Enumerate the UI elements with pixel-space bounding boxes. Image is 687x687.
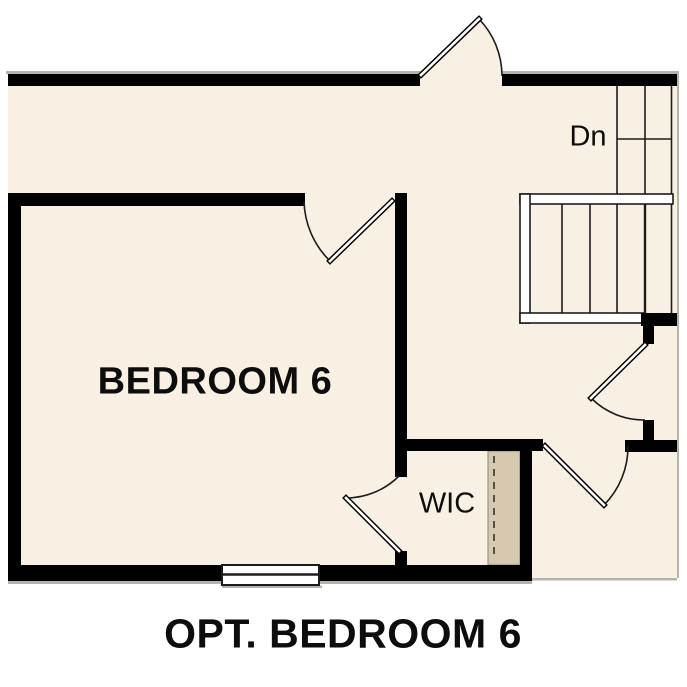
wall-bedroom-left xyxy=(8,193,21,581)
shadow-bottom-right-edge xyxy=(532,578,677,581)
wall-wic-door-jamb xyxy=(395,551,407,565)
wall-under-stairs xyxy=(641,313,677,326)
shadow-top-edge xyxy=(6,71,679,74)
stairs-down-label: Dn xyxy=(569,121,606,154)
wall-wic-right xyxy=(520,439,532,581)
floor-plan-page: BEDROOM 6 WIC Dn OPT. BEDROOM 6 xyxy=(0,0,687,687)
wall-top-left xyxy=(8,74,420,86)
closet-shelf xyxy=(488,451,520,565)
wall-bedroom-top xyxy=(8,193,305,206)
floor-plan xyxy=(0,0,687,687)
wall-hall-jamb-lower xyxy=(643,420,654,440)
stair-rail-bottom xyxy=(520,313,643,323)
stair-rail-top xyxy=(520,194,673,204)
window xyxy=(222,565,319,585)
wall-hall-jamb-upper xyxy=(643,326,654,344)
wic-room-label: WIC xyxy=(419,488,475,521)
stair-rail-left xyxy=(520,194,530,323)
floor-area xyxy=(8,19,677,581)
floor-hall-lower xyxy=(532,452,677,578)
wall-hall-bottom xyxy=(625,440,677,452)
wall-bedroom-right xyxy=(395,193,407,477)
wall-top-right xyxy=(502,74,677,86)
plan-title: OPT. BEDROOM 6 xyxy=(164,611,522,658)
bedroom-room-label: BEDROOM 6 xyxy=(98,361,333,404)
